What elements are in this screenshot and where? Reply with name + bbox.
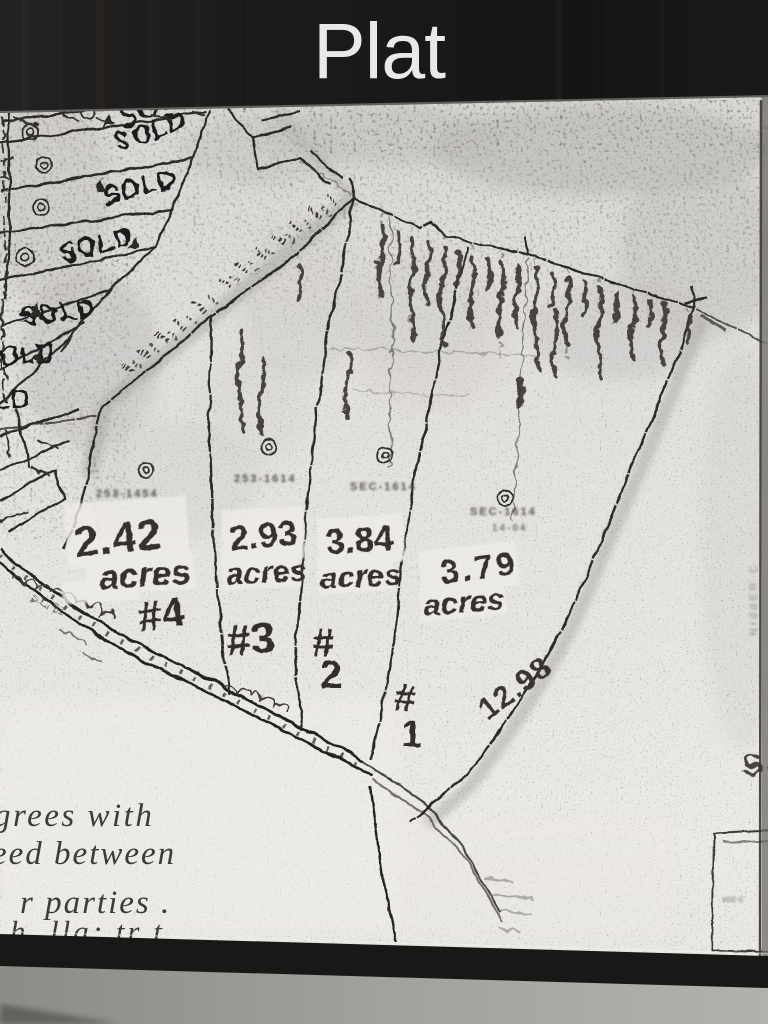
svg-text:acres: acres [422,581,506,623]
svg-text:3.84: 3.84 [324,519,395,563]
svg-text:NIddER C: NIddER C [748,562,760,636]
svg-text:SEC-1614: SEC-1614 [470,506,537,518]
svg-text:Plat: Plat [313,6,446,95]
svg-text:2: 2 [320,653,342,697]
svg-text:grees with: grees with [0,798,154,834]
svg-text:SOLD: SOLD [0,337,57,372]
svg-text:253-1454: 253-1454 [96,488,159,500]
svg-text:eed between: eed between [0,836,176,872]
svg-text:acres: acres [225,553,308,592]
svg-text:#4: #4 [135,588,188,641]
svg-text:2.93: 2.93 [228,514,299,559]
svg-text:voz-c: voz-c [722,894,744,904]
svg-text:1: 1 [401,714,422,756]
svg-text:acres: acres [319,557,402,596]
svg-text:#3: #3 [224,613,277,666]
svg-text:253-1614: 253-1614 [234,473,297,485]
svg-text:SEC-1614: SEC-1614 [350,481,417,493]
svg-text:14-04: 14-04 [492,523,528,534]
